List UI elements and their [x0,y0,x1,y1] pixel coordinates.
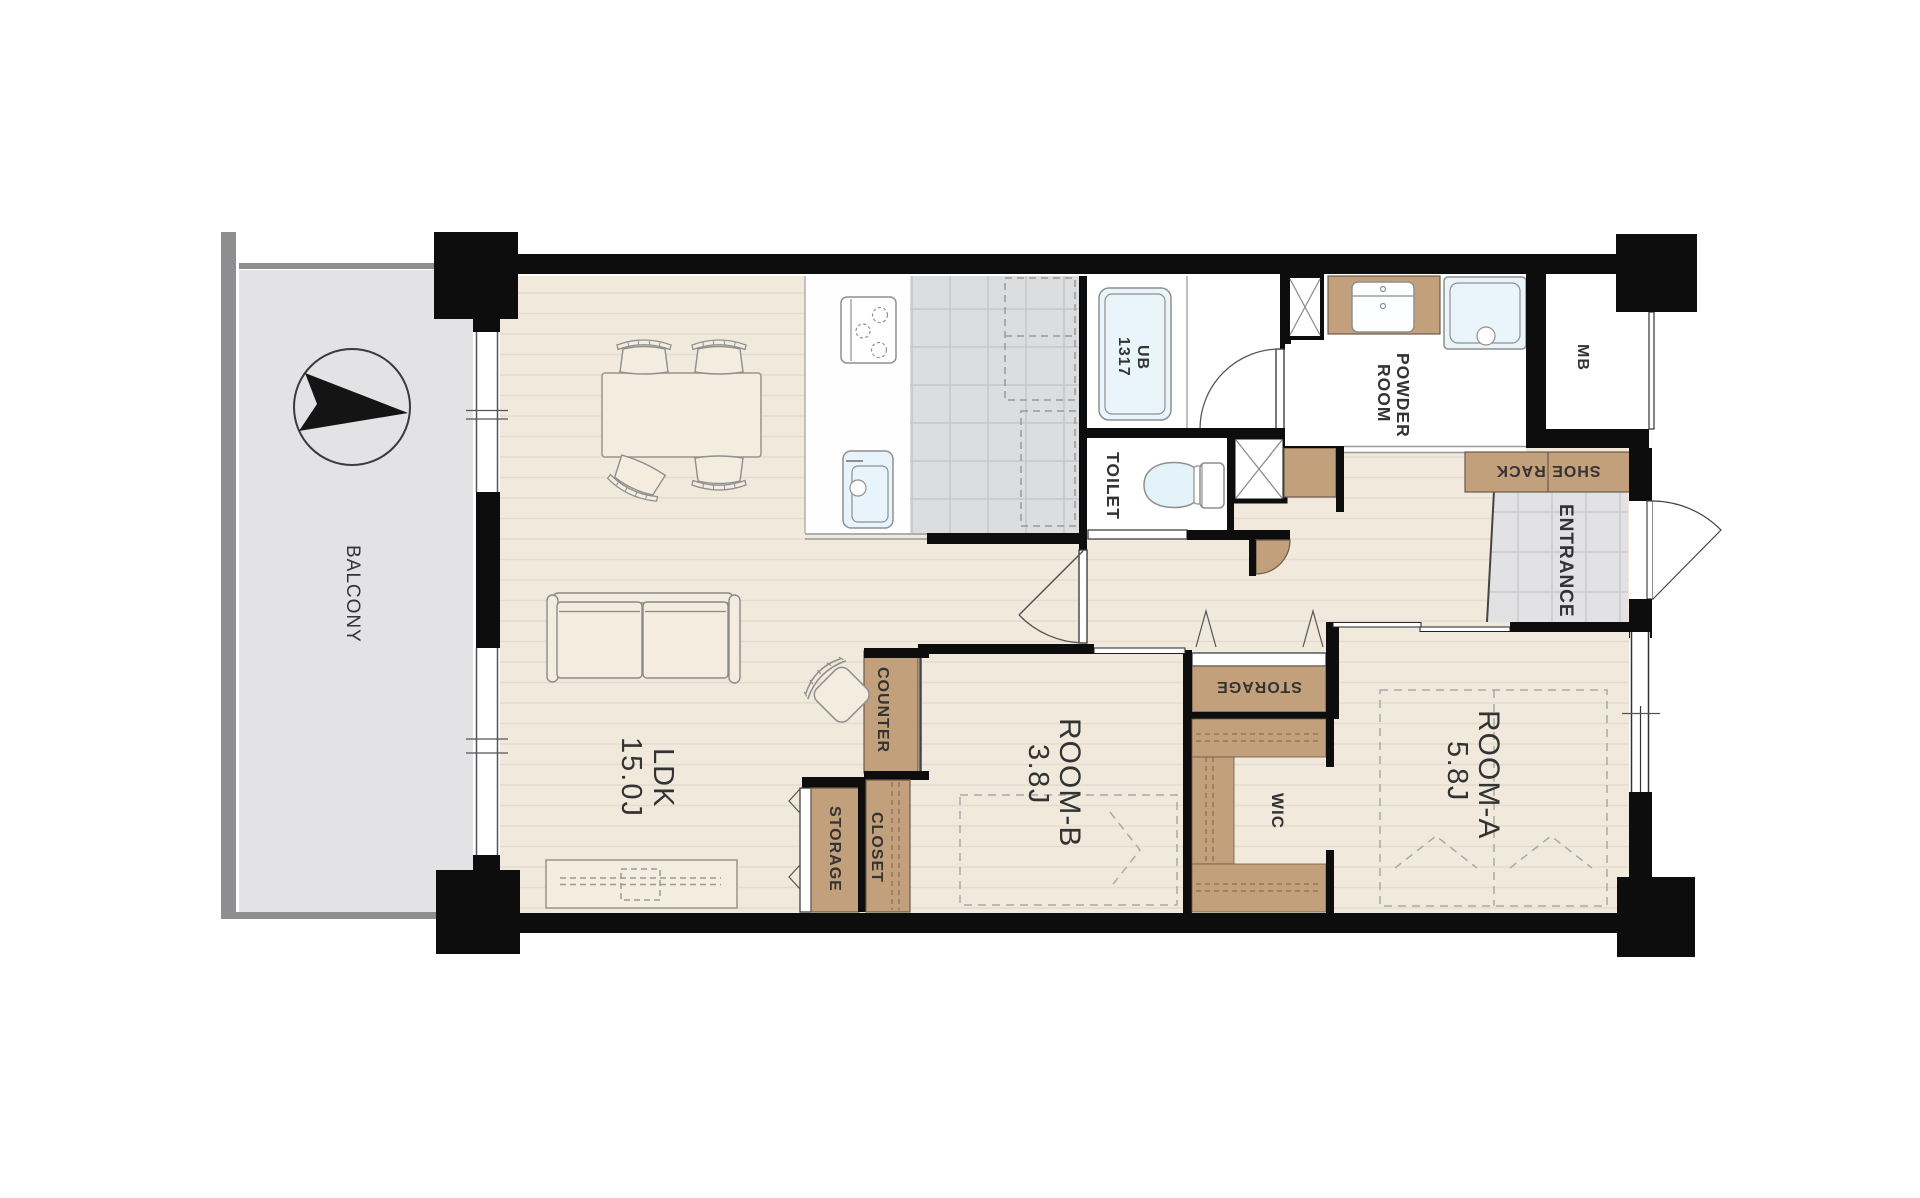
svg-text:UB: UB [1134,345,1151,370]
svg-text:CLOSET: CLOSET [868,812,885,883]
svg-text:WIC: WIC [1268,793,1287,829]
svg-text:STORAGE: STORAGE [826,806,843,892]
svg-text:BALCONY: BALCONY [342,545,363,643]
svg-text:5.8J: 5.8J [1441,741,1473,802]
svg-text:3.8J: 3.8J [1022,744,1054,805]
svg-text:STORAGE: STORAGE [1216,678,1302,695]
svg-text:POWDER: POWDER [1393,353,1413,438]
svg-text:COUNTER: COUNTER [874,667,891,753]
svg-text:ENTRANCE: ENTRANCE [1555,504,1576,618]
svg-text:15.0J: 15.0J [615,737,647,818]
svg-text:SHOE RACK: SHOE RACK [1495,462,1600,479]
svg-text:TOILET: TOILET [1103,452,1123,520]
svg-text:ROOM-B: ROOM-B [1053,718,1086,847]
svg-text:LDK: LDK [647,748,679,807]
svg-text:1317: 1317 [1115,337,1132,377]
svg-text:ROOM: ROOM [1374,364,1394,422]
svg-text:ROOM-A: ROOM-A [1472,710,1505,839]
svg-text:MB: MB [1574,344,1591,371]
